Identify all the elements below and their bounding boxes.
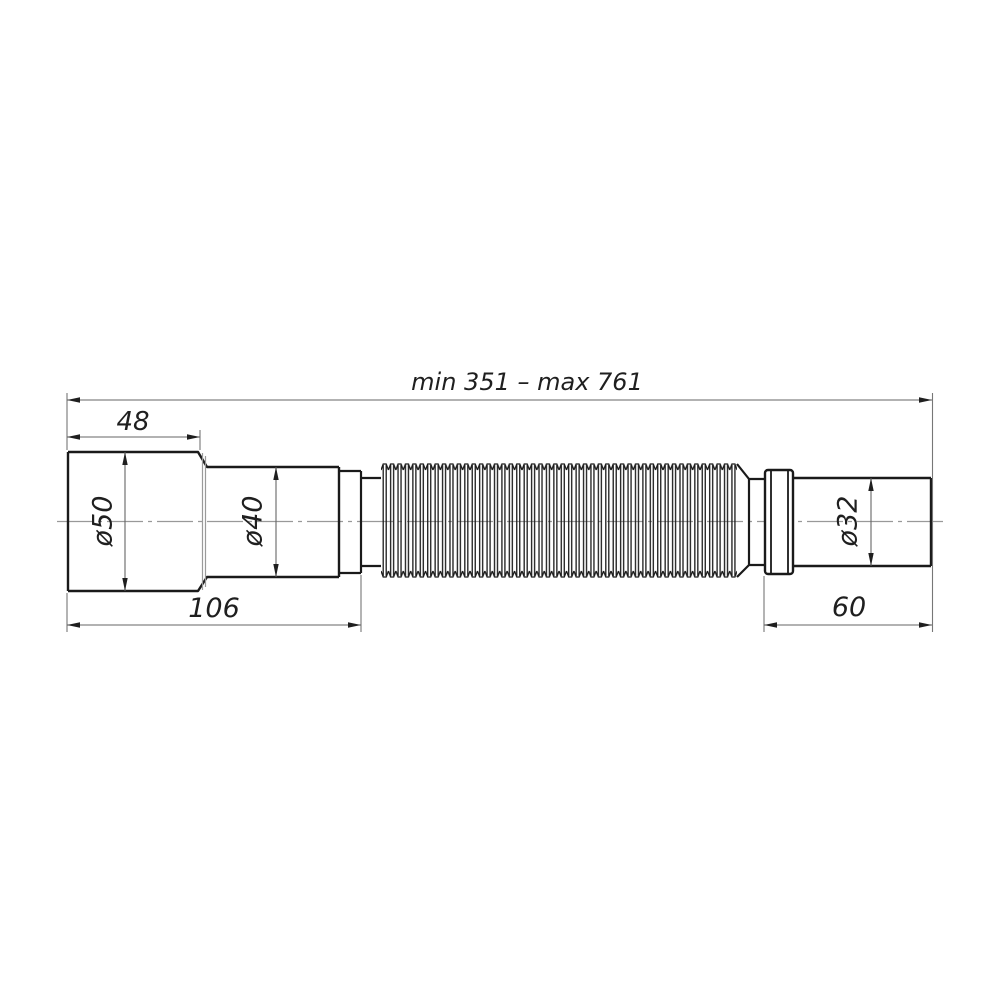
- arrowhead-down-icon: [273, 564, 278, 577]
- inlet-diameter-label: ø50: [88, 496, 119, 548]
- arrowhead-left-icon: [764, 622, 777, 627]
- outlet-length-dimension: 60: [764, 592, 932, 628]
- outlet-diameter-label: ø32: [833, 496, 864, 548]
- arrowhead-left-icon: [67, 397, 80, 402]
- arrowhead-right-icon: [187, 434, 200, 439]
- arrowhead-right-icon: [348, 622, 361, 627]
- arrowhead-right-icon: [919, 622, 932, 627]
- corrugated-section: [381, 463, 737, 578]
- inlet-length-dimension: 48: [67, 407, 200, 440]
- arrowhead-left-icon: [67, 622, 80, 627]
- overall-length-dimension: min 351 – max 761: [67, 368, 932, 403]
- outlet-length-label: 60: [832, 592, 866, 623]
- technical-drawing: min 351 – max 761 48 106 60: [0, 0, 1000, 1000]
- arrowhead-up-icon: [868, 478, 873, 491]
- arrowhead-right-icon: [919, 397, 932, 402]
- middle-diameter-label: ø40: [238, 496, 269, 548]
- arrowhead-up-icon: [273, 467, 278, 480]
- socket-chamfer-lines: [203, 453, 206, 590]
- drawing-canvas: min 351 – max 761 48 106 60: [0, 0, 1000, 1000]
- arrowhead-left-icon: [67, 434, 80, 439]
- arrowhead-down-icon: [122, 578, 127, 591]
- body-length-label: 106: [188, 593, 240, 624]
- inlet-length-label: 48: [116, 407, 149, 437]
- arrowhead-up-icon: [122, 452, 127, 465]
- arrowhead-down-icon: [868, 553, 873, 566]
- body-length-dimension: 106: [67, 593, 361, 628]
- overall-length-label: min 351 – max 761: [411, 368, 643, 396]
- taper-neck-outline: [737, 464, 765, 577]
